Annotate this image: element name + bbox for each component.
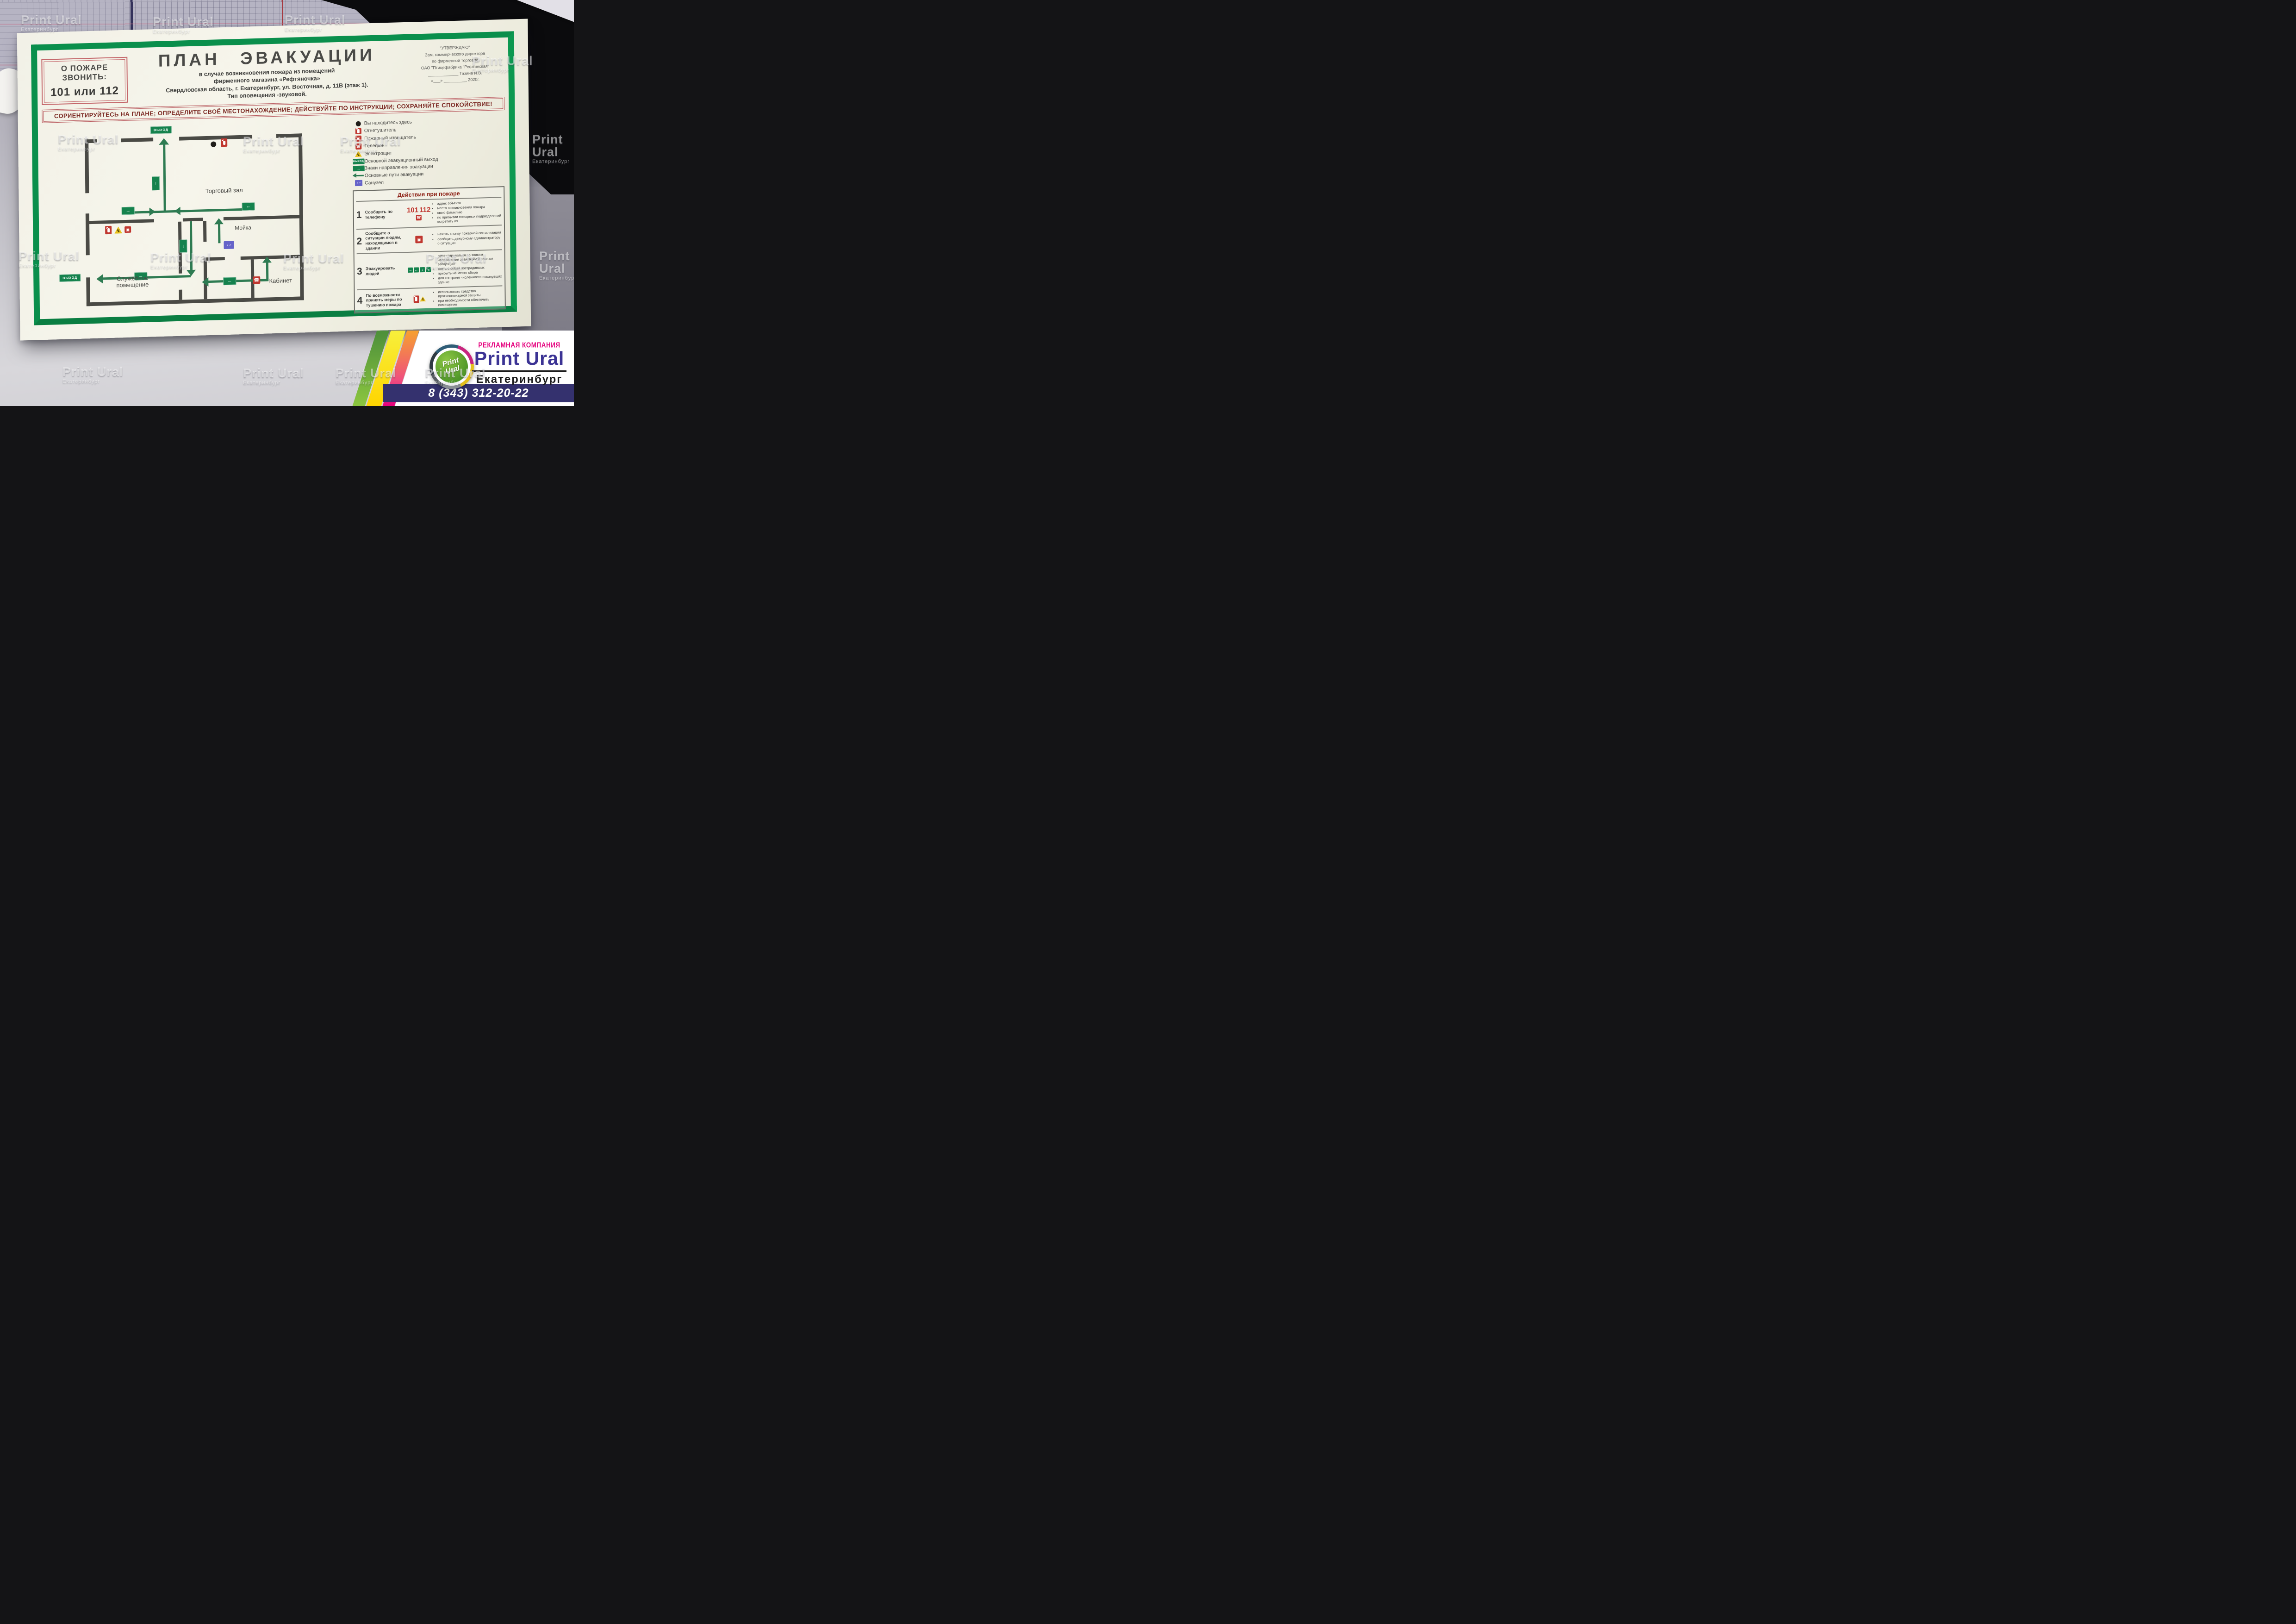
exit-sign-icon: ВЫХОД [353, 158, 364, 164]
arrow-left [174, 207, 180, 215]
fire-call-box: О ПОЖАРЕ ЗВОНИТЬ: 101 или 112 [41, 57, 128, 105]
inner-wall [224, 215, 303, 220]
arrow-up [262, 256, 272, 263]
action-text: Сообщить по телефону [365, 209, 405, 220]
photo-of-printed-evacuation-plan: 210 40 О ПОЖАРЕ ЗВОНИТЬ: 101 или 112 ПЛА… [0, 0, 574, 406]
bullet: для контроля численности покинувших здан… [438, 275, 502, 285]
action-row-4: 4 По возможности принять меры по тушению… [357, 285, 502, 312]
approval-block: "УТВЕРЖДАЮ" Зам. коммерческого директора… [406, 44, 504, 85]
fire-alarm-icon: ▣ [355, 136, 361, 142]
arrow-up [159, 138, 169, 145]
room-label-line: помещение [100, 281, 165, 289]
action-text: Сообщите о ситуации людям, находящимся в… [365, 230, 405, 251]
action-bullets: адрес объекта место возникновения пожара… [432, 200, 501, 225]
arrow-up [214, 218, 224, 225]
phone-icon: ☎ [355, 143, 361, 149]
arrow-right [149, 207, 156, 216]
extinguisher-glyph [415, 297, 417, 301]
fire-call-line: ЗВОНИТЬ: [45, 72, 124, 83]
direction-sign-icon: ↘ [426, 267, 431, 272]
wall [179, 135, 252, 140]
direction-sign: ↓ [179, 239, 187, 252]
fire-call-box-inner: О ПОЖАРЕ ЗВОНИТЬ: 101 или 112 [44, 59, 125, 103]
direction-sign-icon: ↓ [420, 267, 425, 272]
phone-icon: ☎ [416, 215, 422, 220]
floor-plan: ВЫХОД ВЫХОД ↑ ← → ↓ ← ← ↯ ▣ [85, 133, 304, 306]
legend-label: Основной эвакуационный выход [364, 156, 438, 164]
legend-label: Санузел [365, 180, 384, 186]
plan-main: ВЫХОД ВЫХОД ↑ ← → ↓ ← ← ↯ ▣ [42, 116, 507, 322]
wall [86, 213, 90, 255]
exit-sign: ВЫХОД [59, 274, 81, 282]
action-bullets: ориентироваться по знакам направления эв… [433, 252, 503, 285]
wall [86, 277, 90, 306]
action-bullets: использовать средства противопожарной за… [433, 288, 502, 308]
floor-plan-column: ВЫХОД ВЫХОД ↑ ← → ↓ ← ← ↯ ▣ [42, 120, 354, 322]
phone-number-112: 112 [419, 206, 430, 213]
electrical-panel-icon: ↯ [355, 151, 362, 157]
action-icons: → ← ↓ ↘ [407, 267, 432, 273]
action-text: По возможности принять меры по тушению п… [366, 292, 406, 308]
action-icons: ↯ [407, 295, 432, 303]
legend-label: Основные пути эвакуации [365, 171, 423, 178]
evacuation-path [190, 221, 193, 274]
direction-sign-icon: ← [414, 267, 419, 272]
action-icons: ▣ [406, 236, 431, 244]
electrical-panel-icon: ↯ [114, 226, 122, 233]
bullet: ориентироваться по знакам направления эв… [438, 252, 502, 266]
bullet: по прибытии пожарных подразделений встре… [437, 214, 502, 224]
evacuation-path-arrow-icon [354, 175, 364, 177]
room-label-service: Служебное помещение [100, 275, 165, 290]
bullet: при необходимости обесточить помещение [438, 297, 503, 307]
wall [121, 137, 153, 142]
extinguisher-glyph [107, 228, 110, 232]
legend: Вы находитесь здесь Огнетушитель ▣ Пожар… [352, 117, 504, 186]
action-bullets: нажать кнопку пожарной сигнализации сооб… [433, 231, 502, 246]
action-row-2: 2 Сообщите о ситуации людям, находящимся… [356, 225, 502, 253]
direction-sign: ↑ [152, 176, 160, 190]
plan-content: О ПОЖАРЕ ЗВОНИТЬ: 101 или 112 ПЛАН ЭВАКУ… [41, 42, 506, 315]
action-text: Эвакуировать людей [366, 265, 405, 276]
evacuation-plan-board: О ПОЖАРЕ ЗВОНИТЬ: 101 или 112 ПЛАН ЭВАКУ… [17, 19, 531, 341]
legend-label: Электрощит [364, 150, 392, 156]
bullet: сообщить дежурному администратору о ситу… [437, 235, 502, 245]
action-number: 4 [357, 296, 365, 306]
inner-wall [207, 257, 225, 261]
electrical-panel-icon: ↯ [420, 296, 426, 301]
inner-wall [203, 221, 206, 242]
fire-alarm-icon: ▣ [124, 226, 131, 233]
fire-call-numbers: 101 или 112 [45, 84, 124, 100]
legend-label: Огнетушитель [364, 127, 397, 134]
fire-extinguisher-icon [105, 226, 112, 234]
legend-label: Знаки направления эвакуации [365, 163, 433, 171]
phone-icon: ☎ [253, 276, 260, 284]
arrow-left [202, 277, 208, 287]
inner-wall [86, 219, 154, 224]
action-number: 2 [356, 236, 364, 246]
wc-icon: ♀♂ [224, 241, 234, 249]
direction-sign-icon: → [353, 166, 364, 172]
fire-extinguisher-icon [355, 128, 361, 134]
wc-icon: ♀♂ [355, 180, 362, 186]
evacuation-path [163, 144, 166, 212]
action-row-3: 3 Эвакуировать людей → ← ↓ ↘ ориентирова… [357, 249, 503, 289]
room-label-hall: Торговый зал [192, 187, 256, 195]
phone-number-101: 101 [407, 206, 418, 214]
inner-wall [241, 255, 304, 260]
right-column: Вы находитесь здесь Огнетушитель ▣ Пожар… [352, 116, 507, 313]
legend-label: Пожарный извещатель [364, 134, 416, 141]
legend-label: Телефон [364, 143, 385, 149]
action-number: 3 [357, 267, 364, 276]
inner-wall [183, 218, 203, 221]
direction-sign: → [122, 206, 135, 215]
fire-extinguisher-icon [413, 295, 419, 303]
room-label-wash: Мойка [224, 225, 261, 231]
inner-wall [179, 290, 182, 300]
extinguisher-glyph [223, 140, 225, 144]
fire-alarm-icon: ▣ [415, 236, 423, 243]
wall [87, 296, 304, 306]
action-number: 1 [356, 210, 364, 220]
you-are-here-icon [211, 141, 216, 147]
wall [85, 139, 89, 193]
title-block: ПЛАН ЭВАКУАЦИИ в случае возникновения по… [127, 44, 406, 103]
fire-extinguisher-icon [221, 138, 227, 147]
direction-sign-icon: → [408, 268, 413, 273]
evacuation-path [125, 208, 254, 214]
plan-subtitle: в случае возникновения пожара из помещен… [131, 65, 403, 102]
legend-label: Вы находитесь здесь [364, 119, 412, 126]
fire-actions-table: Действия при пожаре 1 Сообщить по телефо… [353, 186, 506, 313]
room-label-office: Кабинет [262, 277, 299, 285]
evacuation-path [218, 224, 220, 243]
direction-sign: ← [223, 277, 236, 285]
direction-sign: ← [242, 202, 255, 211]
action-icons: 101 112 ☎ [406, 206, 431, 220]
extinguisher-glyph [357, 129, 359, 133]
action-row-1: 1 Сообщить по телефону 101 112 ☎ адрес о… [356, 197, 502, 228]
you-are-here-icon [355, 121, 361, 126]
exit-sign: ВЫХОД [150, 126, 172, 134]
